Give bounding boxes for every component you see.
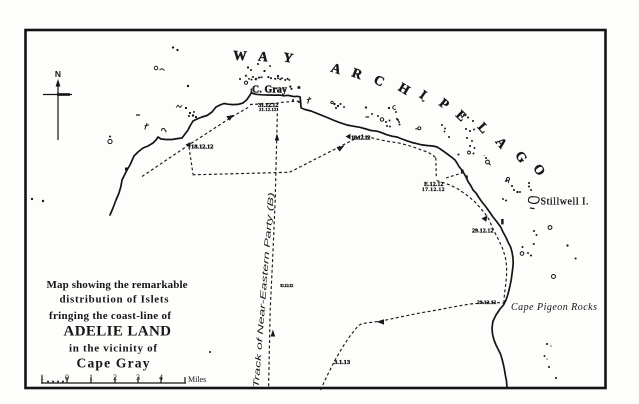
svg-text:0: 0 bbox=[65, 373, 69, 382]
svg-text:ADELIE LAND: ADELIE LAND bbox=[64, 324, 173, 340]
svg-text:1: 1 bbox=[89, 373, 93, 382]
svg-text:4: 4 bbox=[159, 373, 163, 382]
svg-text:Stillwell I.: Stillwell I. bbox=[541, 197, 589, 208]
svg-text:17.12.12: 17.12.12 bbox=[422, 187, 445, 193]
svg-text:W: W bbox=[233, 48, 248, 64]
svg-text:29.12.12: 29.12.12 bbox=[477, 300, 497, 306]
svg-text:1: 1 bbox=[40, 373, 44, 382]
svg-text:3: 3 bbox=[136, 373, 140, 382]
svg-text:Cape Gray: Cape Gray bbox=[77, 356, 150, 371]
svg-text:18.12.12: 18.12.12 bbox=[191, 144, 214, 151]
svg-text:N: N bbox=[55, 69, 61, 79]
svg-text:2: 2 bbox=[113, 373, 117, 382]
svg-text:distribution of Islets: distribution of Islets bbox=[60, 294, 170, 306]
svg-text:21.12.12: 21.12.12 bbox=[259, 107, 277, 112]
svg-text:Map showing the remarkable: Map showing the remarkable bbox=[47, 279, 188, 291]
svg-text:3.1.13: 3.1.13 bbox=[334, 359, 351, 366]
svg-text:in the vicinity of: in the vicinity of bbox=[69, 343, 157, 355]
svg-text:18.12.12: 18.12.12 bbox=[351, 135, 371, 142]
svg-text:fringing the coast-line of: fringing the coast-line of bbox=[49, 310, 171, 322]
svg-text:Miles: Miles bbox=[188, 375, 206, 384]
svg-text:Cape Pigeon Rocks: Cape Pigeon Rocks bbox=[511, 302, 597, 313]
svg-text:C. Gray: C. Gray bbox=[252, 85, 287, 96]
svg-text:31.12.12: 31.12.12 bbox=[280, 283, 294, 288]
svg-text:29.12.12: 29.12.12 bbox=[472, 229, 493, 235]
